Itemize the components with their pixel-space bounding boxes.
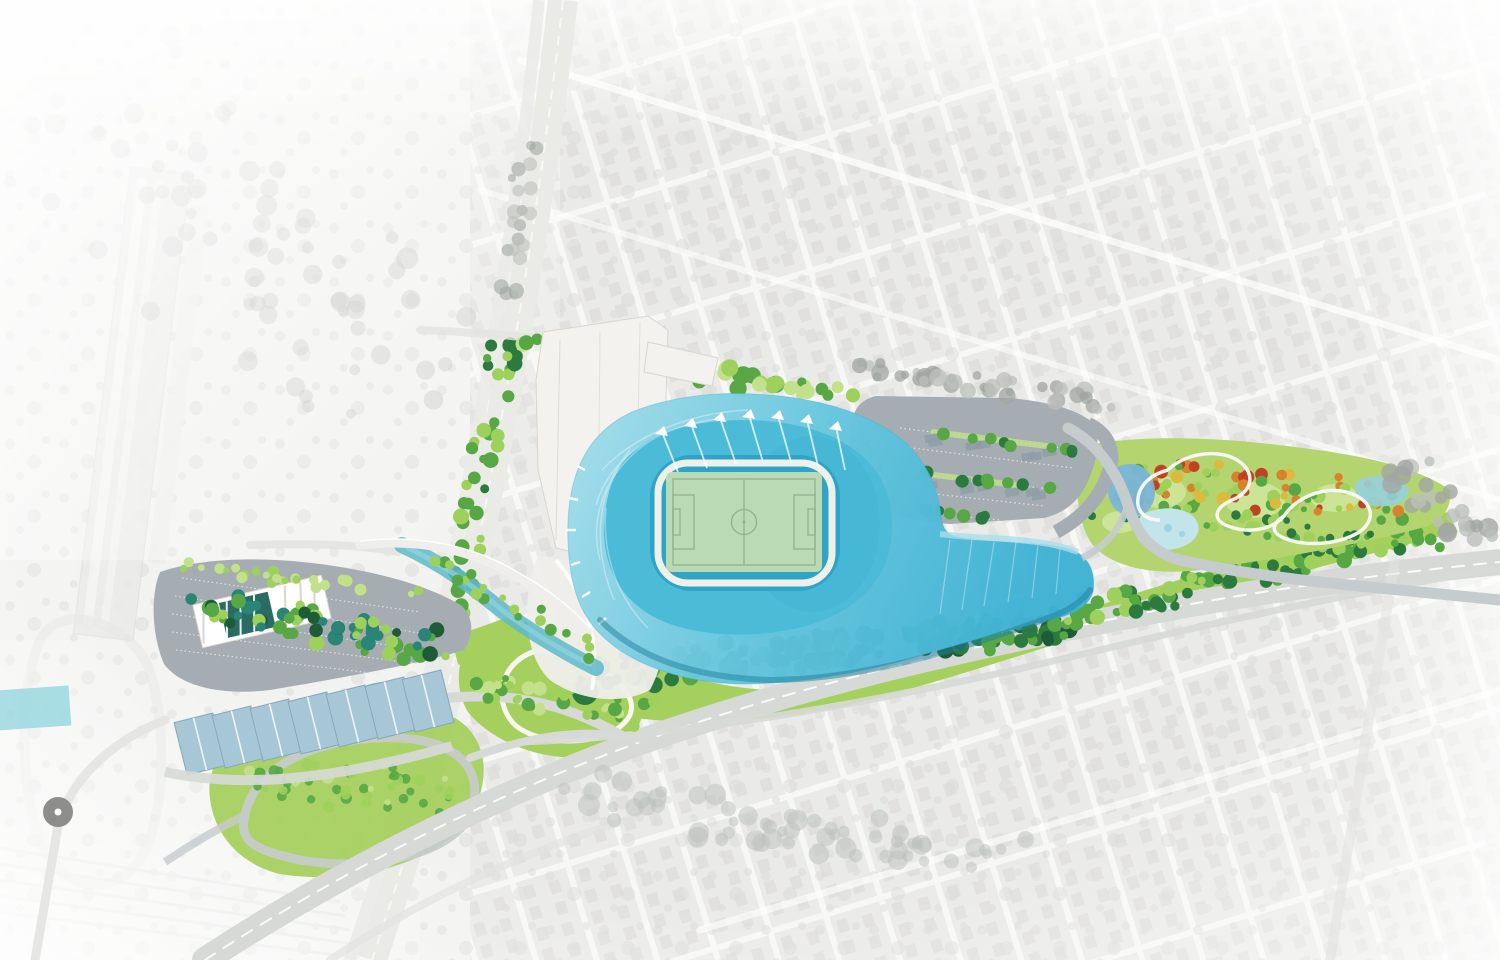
scatter-dot <box>494 681 502 689</box>
scatter-dot <box>1037 382 1047 392</box>
scatter-dot <box>648 695 660 707</box>
scatter-dot <box>491 429 505 443</box>
scatter-dot <box>799 384 814 399</box>
scatter-dot <box>502 351 512 361</box>
scatter-dot <box>1346 503 1354 511</box>
scatter-dot <box>875 358 885 368</box>
scatter-dot <box>1282 484 1290 492</box>
scatter-dot <box>453 509 469 525</box>
scatter-dot <box>1435 542 1445 552</box>
scatter-dot <box>1002 477 1013 488</box>
scatter-dot <box>975 512 988 525</box>
scatter-dot <box>705 784 726 805</box>
scatter-dot <box>1231 510 1240 519</box>
scatter-dot <box>752 834 770 852</box>
scatter-dot <box>1281 492 1289 500</box>
scatter-dot <box>390 771 400 781</box>
scatter-dot <box>784 809 799 824</box>
scatter-dot <box>1288 483 1301 496</box>
scatter-dot <box>1382 505 1390 513</box>
scatter-dot <box>578 794 600 816</box>
scatter-dot <box>852 358 867 373</box>
scatter-dot <box>466 569 476 579</box>
scatter-dot <box>273 620 287 634</box>
scatter-dot <box>419 799 428 808</box>
scatter-dot <box>1314 508 1322 516</box>
scatter-dot <box>341 785 352 796</box>
scatter-dot <box>418 628 431 641</box>
scatter-dot <box>244 766 255 777</box>
scatter-dot <box>996 844 1007 855</box>
scatter-dot <box>373 630 384 641</box>
scatter-dot <box>594 765 612 783</box>
scatter-dot <box>522 681 536 695</box>
scatter-dot <box>1170 601 1179 610</box>
scatter-dot <box>1080 392 1089 401</box>
scatter-dot <box>760 818 773 831</box>
scatter-dot <box>582 710 592 720</box>
scatter-dot <box>1187 572 1198 583</box>
scatter-dot <box>1017 478 1029 490</box>
scatter-dot <box>509 605 519 615</box>
scatter-dot <box>485 340 497 352</box>
scatter-dot <box>355 584 367 596</box>
scatter-dot <box>879 850 893 864</box>
scatter-dot <box>1486 530 1498 542</box>
scatter-dot <box>445 560 454 569</box>
scatter-dot <box>359 784 369 794</box>
scatter-dot <box>1047 394 1063 410</box>
scatter-dot <box>1067 448 1077 458</box>
scatter-dot <box>523 207 537 221</box>
scatter-dot <box>1017 831 1034 848</box>
scatter-dot <box>984 379 1000 395</box>
scatter-dot <box>477 535 485 543</box>
scatter-dot <box>225 618 235 628</box>
scatter-dot <box>1438 523 1457 542</box>
scatter-dot <box>608 801 619 812</box>
scatter-dot <box>715 833 728 846</box>
scatter-dot <box>499 594 506 601</box>
scatter-dot <box>729 817 739 827</box>
scatter-dot <box>1005 440 1017 452</box>
scatter-dot <box>1213 574 1223 584</box>
scatter-dot <box>364 792 372 800</box>
scatter-dot <box>1129 594 1140 605</box>
scatter-dot <box>937 428 950 441</box>
scatter-dot <box>341 575 353 587</box>
scatter-dot <box>1357 540 1366 549</box>
scatter-dot <box>507 243 520 256</box>
scatter-dot <box>807 814 821 828</box>
scatter-dot <box>261 785 268 792</box>
scatter-dot <box>1336 505 1343 512</box>
scatter-dot <box>236 572 247 583</box>
scatter-dot <box>1043 636 1054 647</box>
scatter-dot <box>919 856 930 867</box>
scatter-dot <box>981 474 994 487</box>
scatter-dot <box>483 452 499 468</box>
scatter-dot <box>307 795 315 803</box>
scatter-dot <box>368 616 379 627</box>
scatter-dot <box>281 577 288 584</box>
scatter-dot <box>466 442 478 454</box>
scatter-dot <box>1176 580 1186 590</box>
scatter-dot <box>1367 531 1374 538</box>
scatter-dot <box>835 838 856 859</box>
scatter-dot <box>279 786 288 795</box>
scatter-dot <box>633 791 651 809</box>
scatter-dot <box>966 862 977 873</box>
center-spot <box>743 521 746 524</box>
scatter-dot <box>458 497 470 509</box>
scatter-dot <box>382 647 396 661</box>
scatter-dot <box>892 825 909 842</box>
scatter-dot <box>1195 492 1206 503</box>
scatter-dot <box>251 601 261 611</box>
scatter-dot <box>1157 603 1167 613</box>
scatter-dot <box>320 580 330 590</box>
scatter-dot <box>319 617 328 626</box>
scatter-dot <box>1129 604 1143 618</box>
scatter-dot <box>955 476 966 487</box>
scatter-dot <box>1425 534 1437 546</box>
scatter-dot <box>492 368 504 380</box>
scatter-dot <box>198 564 205 571</box>
wash-top <box>0 0 1500 130</box>
scatter-dot <box>1194 482 1202 490</box>
scatter-dot <box>519 335 534 350</box>
scatter-dot <box>311 761 320 770</box>
scatter-dot <box>385 635 398 648</box>
scatter-dot <box>309 624 323 638</box>
scatter-dot <box>608 703 622 717</box>
scatter-dot <box>582 634 592 644</box>
scatter-dot <box>1189 461 1200 472</box>
scatter-dot <box>1276 470 1287 481</box>
scatter-dot <box>1397 460 1413 476</box>
scatter-dot <box>1047 443 1057 453</box>
scatter-dot <box>223 567 229 573</box>
scatter-dot <box>1446 508 1460 522</box>
scatter-dot <box>1107 403 1116 412</box>
scatter-dot <box>442 652 450 660</box>
scatter-dot <box>252 567 261 576</box>
scatter-dot <box>1304 524 1310 530</box>
scatter-dot <box>628 721 639 732</box>
scatter-dot <box>469 506 483 520</box>
scatter-dot <box>1044 482 1056 494</box>
scatter-dot <box>721 359 738 376</box>
scatter-dot <box>562 629 571 638</box>
scatter-dot <box>422 646 438 662</box>
scatter-dot <box>957 509 970 522</box>
scatter-dot <box>1335 473 1343 481</box>
scatter-dot <box>984 645 996 657</box>
scatter-dot <box>332 785 342 795</box>
scatter-dot <box>944 854 959 869</box>
scatter-dot <box>1214 460 1224 470</box>
scatter-dot <box>1163 491 1170 498</box>
scatter-dot <box>408 591 414 597</box>
scatter-dot <box>502 675 509 682</box>
scatter-dot <box>533 703 546 716</box>
scatter-dot <box>919 376 929 386</box>
scatter-dot <box>1107 587 1122 602</box>
scatter-dot <box>1337 553 1352 568</box>
scatter-dot <box>1092 404 1103 415</box>
scatter-dot <box>1376 515 1386 525</box>
scatter-dot <box>689 822 709 842</box>
scatter-dot <box>301 759 312 770</box>
scatter-dot <box>483 693 494 704</box>
site-plan-canvas <box>0 0 1500 960</box>
roundabout-center <box>55 809 62 816</box>
scatter-dot <box>413 641 422 650</box>
scatter-dot <box>1412 534 1424 546</box>
scatter-dot <box>894 370 906 382</box>
scatter-dot <box>527 702 535 710</box>
scatter-dot <box>1287 528 1297 538</box>
scatter-dot <box>1090 610 1105 625</box>
scatter-dot <box>944 508 956 520</box>
scatter-dot <box>205 603 219 617</box>
scatter-dot <box>489 417 499 427</box>
scatter-dot <box>414 775 425 786</box>
scatter-dot <box>739 806 758 825</box>
scatter-dot <box>1202 468 1210 476</box>
scatter-dot <box>185 593 197 605</box>
scatter-dot <box>483 354 491 362</box>
scatter-dot <box>293 576 301 584</box>
scatter-dot <box>435 784 444 793</box>
scatter-dot <box>414 586 424 596</box>
scatter-dot <box>537 605 546 614</box>
scatter-dot <box>688 786 706 804</box>
scatter-dot <box>973 371 982 380</box>
scatter-dot <box>502 390 514 402</box>
scatter-dot <box>1055 382 1068 395</box>
scatter-dot <box>721 801 736 816</box>
scatter-dot <box>1242 509 1253 520</box>
scatter-dot <box>770 376 784 390</box>
scatter-dot <box>234 611 243 620</box>
scatter-dot <box>1064 617 1072 625</box>
scatter-dot <box>1435 492 1447 504</box>
scatter-dot <box>816 828 835 847</box>
scatter-dot <box>355 617 367 629</box>
scatter-dot <box>511 286 523 298</box>
scatter-dot <box>430 556 441 567</box>
scatter-dot <box>1208 522 1218 532</box>
scatter-dot <box>929 369 947 387</box>
scatter-dot <box>506 681 514 689</box>
scatter-dot <box>507 216 519 228</box>
scatter-dot <box>284 613 295 624</box>
scatter-dot <box>214 563 225 574</box>
scatter-dot <box>1301 506 1307 512</box>
scatter-dot <box>822 390 833 401</box>
scatter-dot <box>1006 388 1014 396</box>
scatter-dot <box>524 181 538 195</box>
scatter-dot <box>480 584 487 591</box>
scatter-dot <box>494 279 509 294</box>
scatter-dot <box>752 377 767 392</box>
scatter-dot <box>869 830 882 843</box>
scatter-dot <box>309 635 325 651</box>
scatter-dot <box>1304 555 1319 570</box>
scatter-dot <box>471 588 483 600</box>
scatter-dot <box>1374 543 1388 557</box>
scatter-dot <box>1392 505 1404 517</box>
canal-west-edge <box>0 685 71 730</box>
scatter-dot <box>545 624 557 636</box>
scatter-dot <box>1198 577 1206 585</box>
scatter-dot <box>960 383 976 399</box>
scatter-dot <box>512 185 524 197</box>
scatter-dot <box>1263 532 1271 540</box>
scatter-dot <box>256 622 265 631</box>
scatter-dot <box>184 557 194 567</box>
scatter-dot <box>1171 471 1183 483</box>
scatter-dot <box>846 388 860 402</box>
scatter-dot <box>1267 559 1279 571</box>
scatter-dot <box>482 681 496 695</box>
scatter-dot <box>1411 493 1426 508</box>
scatter-dot <box>385 799 391 805</box>
scatter-dot <box>985 433 997 445</box>
scatter-dot <box>583 653 594 664</box>
site-plan-stage <box>0 0 1500 960</box>
scatter-dot <box>1203 522 1210 529</box>
scatter-dot <box>470 677 483 690</box>
scatter-dot <box>1381 463 1399 481</box>
scatter-dot <box>546 690 556 700</box>
scatter-dot <box>263 572 270 579</box>
scatter-dot <box>612 771 632 791</box>
scatter-dot <box>1182 588 1193 599</box>
scatter-dot <box>530 141 544 155</box>
scatter-dot <box>1223 574 1238 589</box>
scatter-dot <box>368 786 374 792</box>
scatter-dot <box>965 838 984 857</box>
scatter-dot <box>406 788 414 796</box>
scatter-dot <box>838 826 850 838</box>
scatter-dot <box>1270 498 1281 509</box>
scatter-dot <box>452 575 464 587</box>
scatter-dot <box>1059 631 1068 640</box>
scatter-dot <box>287 628 298 639</box>
scatter-dot <box>352 631 360 639</box>
scatter-dot <box>231 564 240 573</box>
scatter-dot <box>476 423 491 438</box>
scatter-dot <box>513 696 521 704</box>
scatter-dot <box>535 615 546 626</box>
scatter-dot <box>585 642 594 651</box>
scatter-dot <box>523 157 537 171</box>
scatter-dot <box>1424 456 1434 466</box>
scatter-dot <box>1391 539 1399 547</box>
scatter-dot <box>308 612 320 624</box>
scatter-dot <box>231 594 246 609</box>
scatter-dot <box>444 789 455 800</box>
scatter-dot <box>1162 581 1177 596</box>
scatter-dot <box>911 835 931 855</box>
scatter-dot <box>1211 468 1220 477</box>
scatter-dot <box>947 374 963 390</box>
scatter-dot <box>1256 476 1267 487</box>
scatter-dot <box>272 574 281 583</box>
scatter-dot <box>607 813 621 827</box>
scatter-dot <box>871 809 889 827</box>
scatter-dot <box>558 782 570 794</box>
scatter-dot <box>809 844 830 865</box>
scatter-dot <box>442 776 448 782</box>
scatter-dot <box>655 786 667 798</box>
scatter-dot <box>1419 477 1434 492</box>
scatter-dot <box>323 801 335 813</box>
scatter-dot <box>968 433 978 443</box>
scatter-dot <box>399 794 409 804</box>
scatter-dot <box>480 484 489 493</box>
scatter-dot <box>331 621 344 634</box>
scatter-dot <box>832 381 844 393</box>
scatter-dot <box>1470 519 1483 532</box>
scatter-dot <box>468 472 481 485</box>
